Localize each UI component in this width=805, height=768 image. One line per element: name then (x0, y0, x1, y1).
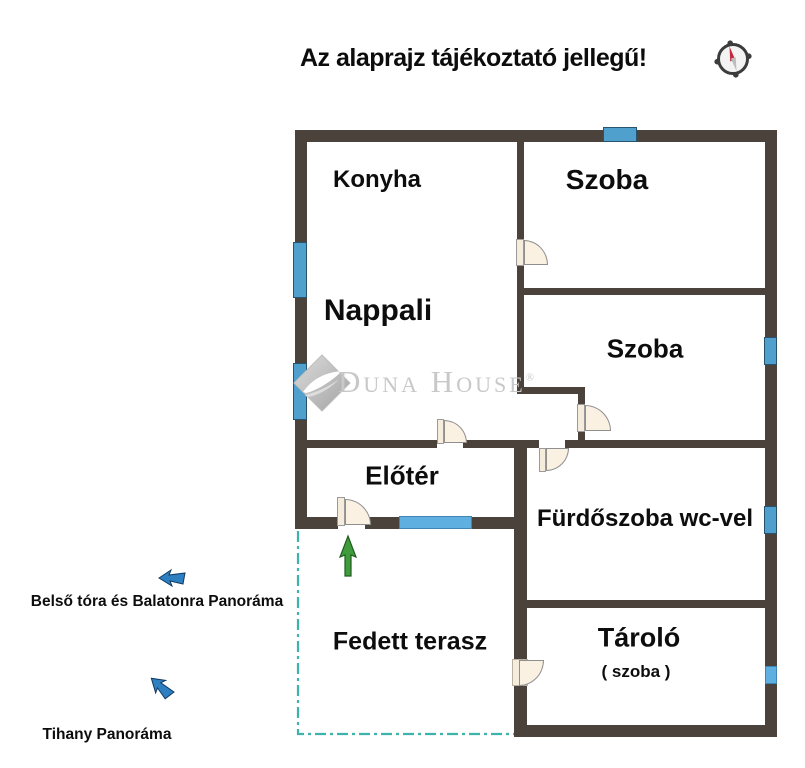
panorama-arrow-left-icon (159, 570, 185, 586)
window-marker (764, 506, 777, 534)
wall (517, 142, 524, 394)
wall (307, 440, 765, 448)
room-label-furdoszoba: Fürdőszoba wc-vel (537, 505, 753, 533)
compass-needle-south (731, 57, 737, 71)
room-label-konyha: Konyha (333, 166, 421, 194)
door-leaf (577, 404, 585, 432)
wall (527, 600, 765, 608)
page-title: Az alaprajz tájékoztató jellegű! (300, 44, 647, 73)
window-marker (765, 666, 777, 684)
floorplan-canvas: Az alaprajz tájékoztató jellegű! (0, 0, 805, 768)
entrance-arrow-icon (340, 536, 356, 576)
compass-icon (714, 40, 751, 77)
wall (295, 130, 307, 529)
annotation-tihany-panorama: Tihany Panoráma (43, 726, 172, 744)
window-marker (764, 337, 777, 365)
door-leaf (437, 419, 444, 444)
door-leaf (337, 497, 345, 526)
wall (765, 130, 777, 737)
window-marker (293, 242, 307, 298)
room-label-szoba-also: Szoba (607, 334, 684, 365)
room-label-nappali: Nappali (324, 294, 432, 328)
room-label-fedett-terasz: Fedett terasz (333, 628, 487, 657)
registered-mark: ® (526, 372, 534, 384)
room-label-szoba-felso: Szoba (566, 164, 648, 196)
annotation-balaton-panorama: Belső tóra és Balatonra Panoráma (31, 593, 283, 611)
door-arc (585, 405, 611, 431)
room-label-tarolo-sub: ( szoba ) (602, 662, 671, 682)
duna-house-watermark: Duna House® (338, 364, 534, 400)
room-label-eloter: Előtér (365, 461, 439, 492)
window-marker (293, 363, 307, 420)
door-leaf (539, 448, 546, 472)
door-arc (546, 448, 569, 471)
door-arc (444, 420, 467, 443)
wall (514, 441, 527, 737)
door-leaf (516, 239, 524, 266)
door-arc (524, 240, 548, 265)
door-arc (519, 660, 544, 686)
door-arc (345, 499, 371, 525)
compass-needle-north (730, 47, 736, 62)
wall (517, 288, 765, 295)
watermark-brand: Duna House (338, 364, 526, 399)
terrace-door-window-marker (399, 516, 472, 529)
room-label-tarolo: Tároló (598, 623, 681, 654)
wall (295, 130, 777, 142)
panorama-arrow-downleft-icon (146, 672, 176, 701)
window-marker (603, 127, 637, 142)
wall (514, 725, 777, 737)
